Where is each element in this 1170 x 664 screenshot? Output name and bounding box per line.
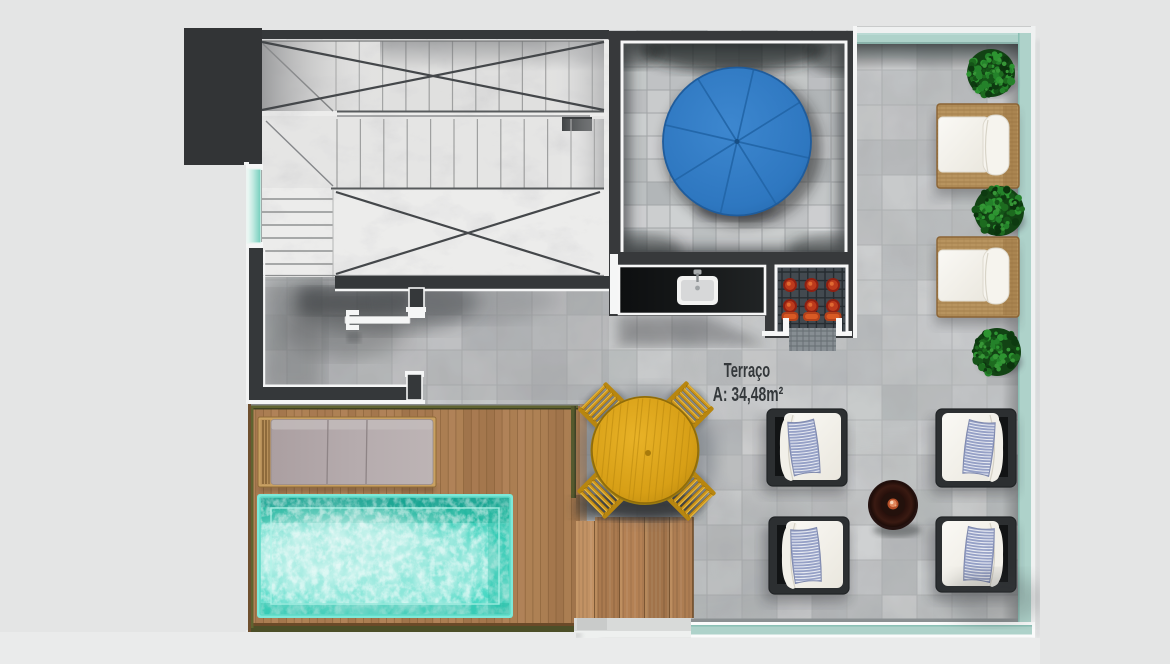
svg-text:Terraço: Terraço bbox=[724, 358, 770, 382]
svg-text:A: 34,48m²: A: 34,48m² bbox=[713, 382, 784, 405]
